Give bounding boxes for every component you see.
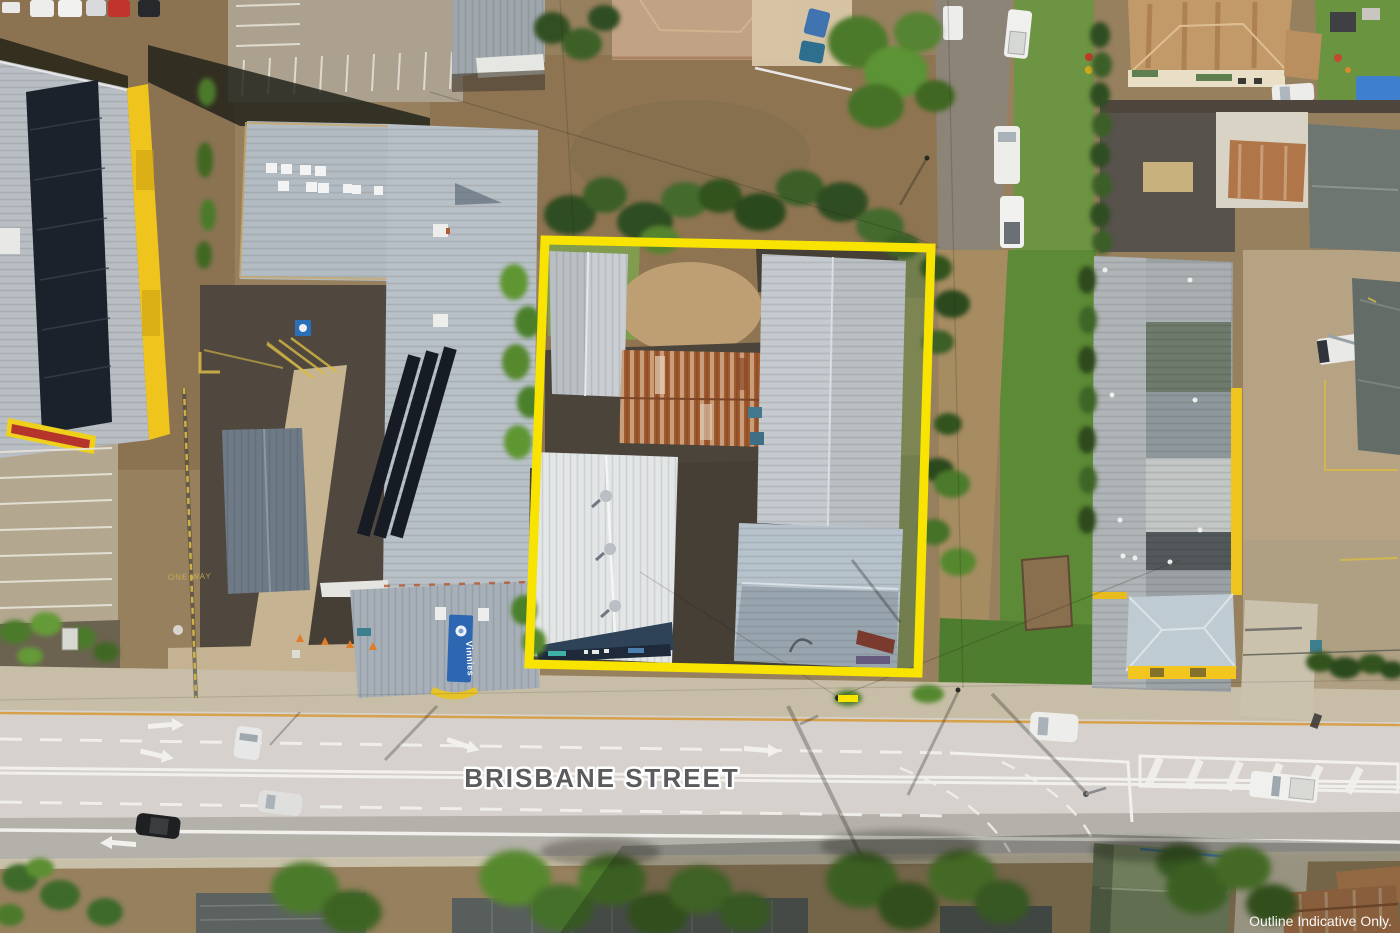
blue-tarp — [1356, 76, 1400, 101]
red-car — [108, 0, 130, 17]
rusty-shed — [619, 350, 770, 447]
aerial-scene: ONE WAY — [0, 0, 1400, 933]
site-warehouse — [757, 254, 906, 531]
top-left-industrial-building — [0, 38, 170, 458]
one-way-road-marking: ONE WAY — [168, 571, 212, 582]
dirt-pit — [1022, 556, 1072, 630]
carpark-sign — [62, 628, 78, 650]
rooftop-ac-unit — [0, 228, 20, 254]
disabled-bay-symbol — [173, 625, 183, 635]
site-building-northwest — [549, 251, 628, 397]
hip-roof-unit — [1126, 594, 1236, 679]
red-wheelie-bin — [1085, 53, 1093, 61]
outline-driveway-dash — [838, 695, 858, 702]
yellow-wall-strip — [1231, 388, 1242, 560]
disclaimer-label: Outline Indicative Only. — [1249, 913, 1392, 929]
aerial-photograph: ONE WAY — [0, 0, 1400, 933]
yellow-wheelie-bin — [1085, 66, 1093, 74]
site-building-southwest — [528, 452, 678, 663]
street-name-label: BRISBANE STREET — [464, 763, 740, 793]
vinnies-banner: Vinnies — [447, 615, 476, 683]
vinnies-banner-label: Vinnies — [464, 641, 476, 677]
subject-site — [528, 240, 932, 674]
